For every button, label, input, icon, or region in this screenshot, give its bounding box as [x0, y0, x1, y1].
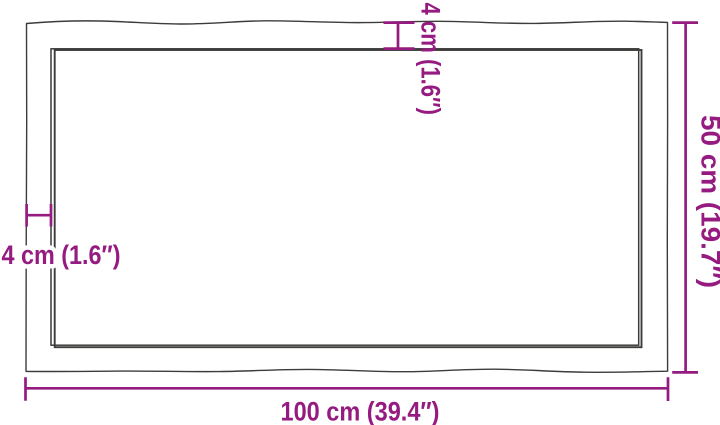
svg-text:50 cm (19.7″): 50 cm (19.7″): [696, 115, 720, 288]
svg-text:4 cm (1.6″): 4 cm (1.6″): [2, 240, 121, 270]
svg-text:4 cm (1.6″): 4 cm (1.6″): [416, 3, 446, 116]
svg-text:100 cm (39.4″): 100 cm (39.4″): [281, 396, 440, 425]
